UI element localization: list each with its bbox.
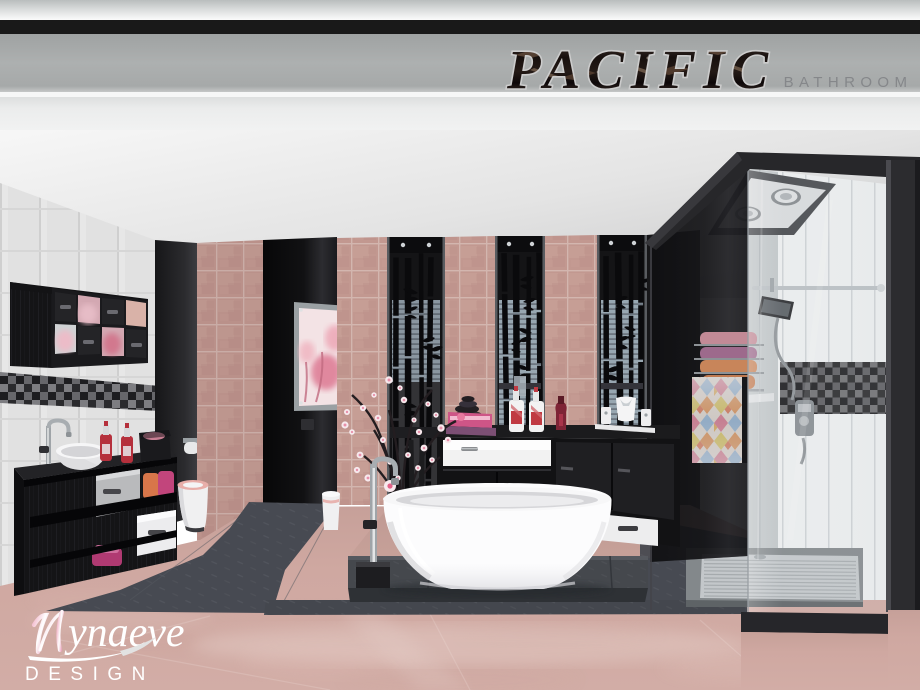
svg-text:ynaeve: ynaeve xyxy=(64,610,185,656)
svg-text:BATHROOM: BATHROOM xyxy=(784,74,913,91)
svg-text:DESIGN: DESIGN xyxy=(25,664,155,685)
